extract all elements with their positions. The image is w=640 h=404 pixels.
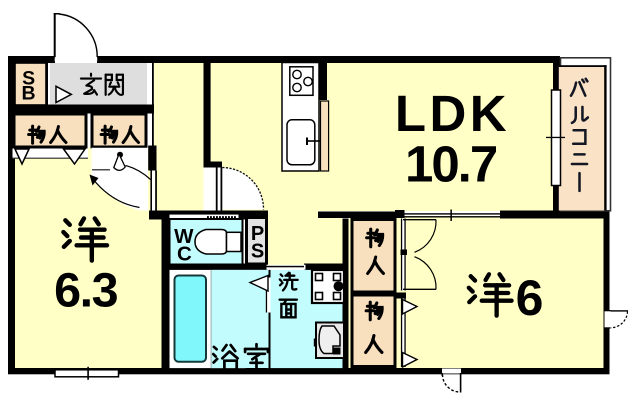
- svg-text:6.3: 6.3: [54, 263, 117, 317]
- svg-text:6: 6: [516, 270, 544, 326]
- svg-text:S: S: [251, 240, 264, 262]
- svg-text:10.7: 10.7: [405, 136, 497, 193]
- svg-text:C: C: [177, 243, 192, 266]
- svg-text:LDK: LDK: [395, 85, 510, 142]
- svg-text:B: B: [22, 83, 36, 105]
